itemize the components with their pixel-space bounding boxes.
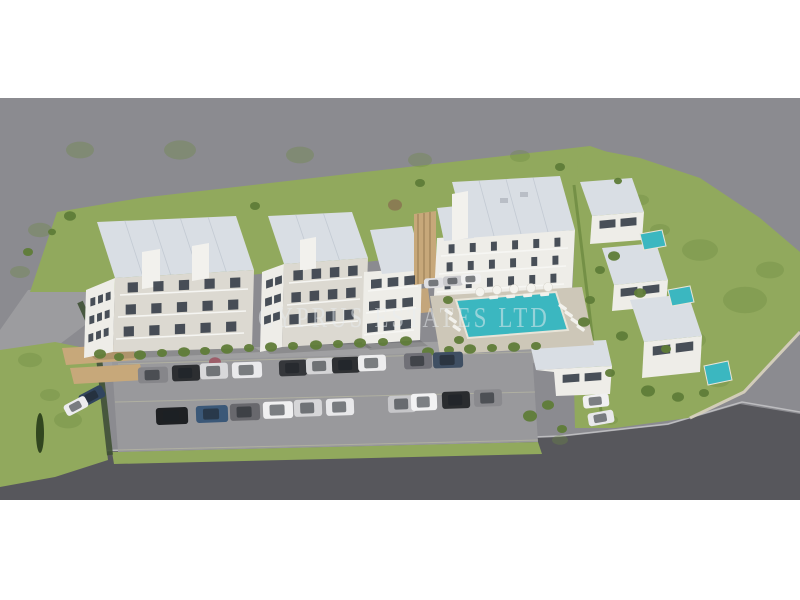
grass-patch	[28, 223, 52, 237]
window	[151, 303, 161, 313]
tree	[310, 340, 322, 350]
car-glass	[410, 356, 424, 367]
tree	[578, 317, 590, 327]
car	[306, 358, 335, 375]
window	[346, 287, 355, 298]
car	[442, 391, 471, 409]
tree	[531, 342, 541, 350]
car	[433, 351, 464, 368]
window	[487, 277, 493, 286]
car	[332, 357, 361, 374]
umbrella	[527, 284, 536, 293]
car-glass	[144, 370, 159, 381]
window	[348, 265, 357, 276]
stair-tower	[452, 191, 468, 241]
tree	[288, 342, 298, 350]
car	[156, 407, 189, 425]
watermark-text: CYPRUS ESTATES LTD	[258, 302, 550, 334]
stair-tower	[300, 237, 316, 271]
tree	[354, 338, 366, 348]
car-glass	[332, 401, 346, 412]
car	[294, 399, 323, 417]
window	[489, 259, 495, 268]
window	[371, 279, 382, 289]
car-glass	[439, 355, 454, 366]
car-glass	[203, 408, 219, 419]
window	[508, 276, 514, 285]
car-glass	[238, 365, 253, 376]
window	[563, 374, 580, 383]
tree	[487, 344, 497, 352]
car	[263, 401, 294, 419]
grass-patch	[66, 142, 94, 159]
tree	[605, 369, 615, 377]
tree	[221, 344, 233, 354]
rooftop-unit	[520, 192, 528, 197]
window	[149, 325, 159, 335]
apartment-block-1	[84, 216, 262, 360]
window	[175, 324, 185, 334]
window	[124, 326, 134, 336]
render-canvas: CYPRUS ESTATES LTD	[0, 0, 800, 600]
window	[179, 280, 189, 290]
window	[126, 304, 136, 314]
window	[531, 257, 537, 266]
car	[461, 273, 481, 284]
villa-1-pool	[640, 230, 666, 250]
car-glass	[394, 398, 408, 409]
window	[533, 239, 539, 248]
tree	[333, 340, 343, 348]
window	[529, 275, 535, 284]
window	[510, 258, 516, 267]
car	[582, 393, 609, 409]
car-glass	[163, 410, 179, 421]
window	[468, 261, 474, 270]
window	[312, 268, 321, 279]
screenshot-root: CYPRUS ESTATES LTD	[0, 0, 800, 600]
grass-patch	[408, 153, 432, 167]
tree	[661, 345, 671, 353]
car	[172, 365, 201, 382]
window	[90, 297, 95, 307]
car	[279, 360, 308, 377]
grass-patch	[10, 266, 30, 278]
tree	[523, 410, 537, 421]
window	[470, 243, 476, 252]
window	[105, 309, 110, 319]
car	[358, 355, 387, 372]
tree	[585, 296, 595, 304]
front-facade	[590, 212, 644, 244]
window	[202, 301, 212, 311]
grass-patch	[756, 262, 784, 279]
window	[204, 279, 214, 289]
villa-2-pool	[668, 286, 694, 306]
tree	[250, 202, 260, 210]
car-glass	[465, 276, 475, 283]
car	[474, 389, 503, 407]
car-glass	[480, 392, 494, 403]
window	[230, 277, 240, 287]
window	[200, 323, 210, 333]
tree	[595, 266, 605, 274]
window	[512, 240, 518, 249]
window	[106, 291, 111, 301]
window	[98, 294, 103, 304]
rooftop-unit	[500, 198, 508, 203]
window	[310, 290, 319, 301]
car-glass	[448, 394, 462, 405]
window	[128, 282, 138, 292]
car	[326, 398, 355, 416]
cypress-tree	[36, 413, 44, 453]
window	[104, 327, 109, 337]
tree	[94, 349, 106, 359]
umbrella	[544, 283, 553, 292]
car	[232, 361, 263, 378]
car-glass	[312, 361, 326, 372]
tree	[641, 385, 655, 396]
window	[177, 302, 187, 312]
window	[89, 315, 94, 325]
car-glass	[364, 358, 378, 369]
car-glass	[269, 404, 284, 415]
window	[96, 330, 101, 340]
window	[88, 333, 93, 343]
grass-patch	[40, 389, 60, 401]
car	[200, 363, 229, 380]
tree	[244, 344, 254, 352]
car-glass	[417, 396, 430, 407]
stair-tower	[192, 243, 209, 281]
car	[443, 275, 463, 286]
window	[621, 217, 637, 227]
car	[411, 393, 438, 411]
window	[293, 270, 302, 281]
car	[196, 405, 229, 423]
grass-patch	[682, 239, 718, 261]
grass-patch	[18, 353, 42, 367]
tree	[555, 163, 565, 171]
car-glass	[447, 278, 457, 285]
tree	[48, 229, 56, 235]
tree	[616, 331, 628, 341]
tree	[608, 251, 620, 261]
window	[97, 312, 102, 322]
window	[600, 219, 616, 229]
window	[388, 277, 399, 287]
car	[138, 366, 169, 383]
tree	[699, 389, 709, 397]
window	[585, 372, 602, 381]
umbrella	[493, 286, 502, 295]
window	[228, 299, 238, 309]
tree	[400, 336, 412, 346]
umbrella	[476, 288, 485, 297]
tree	[200, 347, 210, 355]
tree	[378, 338, 388, 346]
grass-patch	[723, 287, 767, 313]
window	[552, 255, 558, 264]
car-glass	[300, 402, 314, 413]
roof	[97, 216, 254, 278]
window	[447, 262, 453, 271]
window	[554, 237, 560, 246]
tree	[23, 248, 33, 256]
car-glass	[206, 366, 220, 377]
tree	[508, 342, 520, 352]
tree	[388, 199, 402, 210]
tree	[454, 336, 464, 344]
car-glass	[236, 406, 251, 417]
tree	[464, 344, 476, 354]
car-glass	[338, 360, 352, 371]
tree	[557, 425, 567, 433]
window	[226, 321, 236, 331]
window	[404, 275, 415, 285]
car	[230, 403, 261, 421]
tree	[157, 349, 167, 357]
car-glass	[588, 396, 602, 406]
wood-louver-tower	[414, 211, 436, 285]
window	[330, 267, 339, 278]
tree	[134, 350, 146, 360]
tree	[415, 179, 425, 187]
car-glass	[428, 280, 438, 287]
grass-patch	[164, 140, 196, 159]
window	[449, 244, 455, 253]
tree	[114, 353, 124, 361]
grass-patch	[510, 150, 530, 162]
tree	[672, 392, 684, 402]
tree	[634, 288, 646, 298]
car	[404, 353, 433, 370]
car	[424, 277, 444, 288]
window	[491, 241, 497, 250]
tree	[64, 211, 76, 221]
umbrella	[510, 285, 519, 294]
window	[550, 273, 556, 282]
tree	[542, 400, 554, 410]
tree	[614, 178, 622, 184]
grass-patch	[552, 435, 568, 445]
tree	[178, 347, 190, 357]
tree	[265, 342, 277, 352]
window	[153, 281, 163, 291]
car-glass	[285, 363, 299, 374]
grass-patch	[286, 147, 314, 164]
car-glass	[178, 368, 192, 379]
roof	[268, 212, 368, 264]
window	[328, 289, 337, 300]
